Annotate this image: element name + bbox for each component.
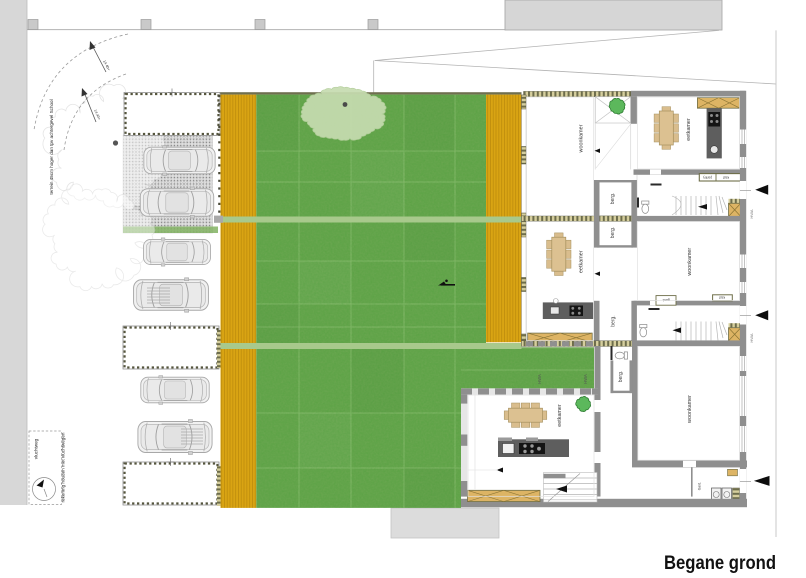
svg-text:terrein 45cm hoger dan tpv ach: terrein 45cm hoger dan tpv achtergevel S… — [49, 99, 54, 194]
svg-text:eetkamer: eetkamer — [579, 250, 585, 273]
svg-text:woonkamer: woonkamer — [579, 124, 585, 153]
svg-text:kast: kast — [719, 296, 725, 300]
svg-text:kast: kast — [723, 175, 729, 179]
svg-text:vluchtweg: vluchtweg — [34, 438, 39, 459]
svg-text:HWA: HWA — [537, 374, 542, 384]
svg-text:eetkamer: eetkamer — [686, 118, 692, 141]
svg-text:berg.: berg. — [618, 371, 624, 382]
svg-text:woonkamer: woonkamer — [687, 248, 693, 277]
svg-text:berg.: berg. — [611, 315, 617, 326]
svg-text:eetkamer: eetkamer — [557, 404, 563, 427]
svg-text:berg.: berg. — [610, 227, 616, 238]
svg-text:pantry: pantry — [703, 175, 713, 179]
svg-text:HWA: HWA — [749, 209, 754, 219]
svg-text:rekening houden met vluchtwege: rekening houden met vluchtwegen — [61, 432, 66, 502]
svg-text:HWA: HWA — [749, 333, 754, 343]
svg-text:HWA: HWA — [583, 374, 588, 384]
svg-text:berg.: berg. — [610, 193, 616, 204]
svg-text:woonkamer: woonkamer — [687, 395, 693, 424]
svg-text:Gard.: Gard. — [698, 482, 702, 491]
svg-text:Begane grond: Begane grond — [664, 552, 776, 574]
